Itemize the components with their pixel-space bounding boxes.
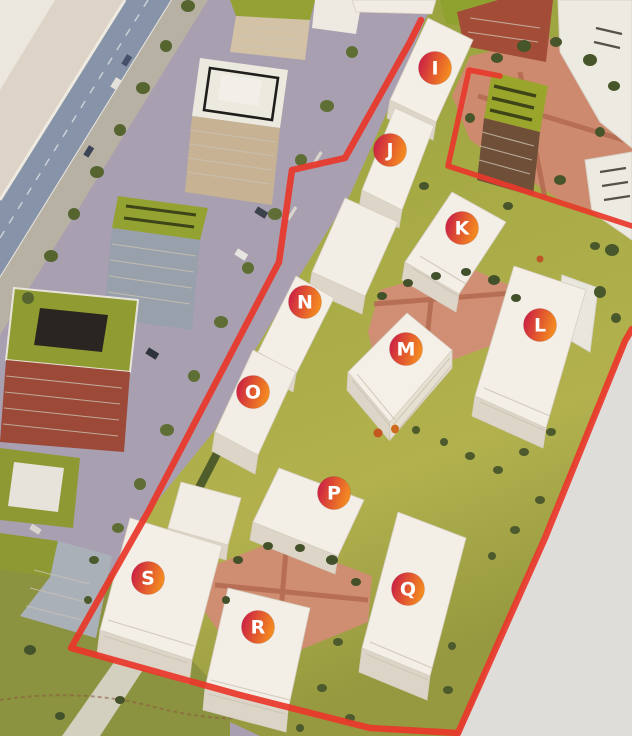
roof-center bbox=[8, 462, 64, 512]
building-marker-P[interactable]: P bbox=[318, 477, 351, 510]
roof-courtyard bbox=[34, 308, 108, 352]
marker-badge-label: S bbox=[141, 568, 155, 590]
building-marker-I[interactable]: I bbox=[419, 52, 452, 85]
autumn-bush bbox=[391, 425, 399, 434]
building-marker-J[interactable]: J bbox=[374, 134, 407, 167]
marker-badge-label: N bbox=[297, 292, 313, 314]
marker-badge-label: Q bbox=[400, 579, 416, 601]
building-marker-K[interactable]: K bbox=[446, 212, 479, 245]
autumn-bush bbox=[374, 429, 383, 438]
site-model-photo: IJKLMNOPQRS bbox=[0, 0, 632, 736]
building-marker-R[interactable]: R bbox=[242, 611, 275, 644]
building-marker-N[interactable]: N bbox=[289, 286, 322, 319]
building-marker-M[interactable]: M bbox=[390, 333, 423, 366]
marker-badge-label: L bbox=[534, 315, 546, 337]
building-marker-S[interactable]: S bbox=[132, 562, 165, 595]
marker-badge-label: K bbox=[455, 218, 471, 240]
building-marker-L[interactable]: L bbox=[524, 309, 557, 342]
brick-tower-facade bbox=[0, 360, 130, 452]
marker-badge-label: M bbox=[397, 339, 416, 361]
marker-badge-label: P bbox=[327, 483, 341, 505]
marker-badge-label: R bbox=[251, 617, 266, 639]
tan-tower-facade bbox=[185, 116, 280, 205]
marker-badge-label: O bbox=[245, 382, 261, 404]
building-marker-O[interactable]: O bbox=[237, 376, 270, 409]
marker-badge-label: J bbox=[384, 140, 393, 162]
screenshot-root: IJKLMNOPQRS bbox=[0, 0, 632, 736]
building-marker-Q[interactable]: Q bbox=[392, 573, 425, 606]
marker-badge-label: I bbox=[431, 58, 438, 80]
autumn-bush bbox=[537, 256, 544, 263]
